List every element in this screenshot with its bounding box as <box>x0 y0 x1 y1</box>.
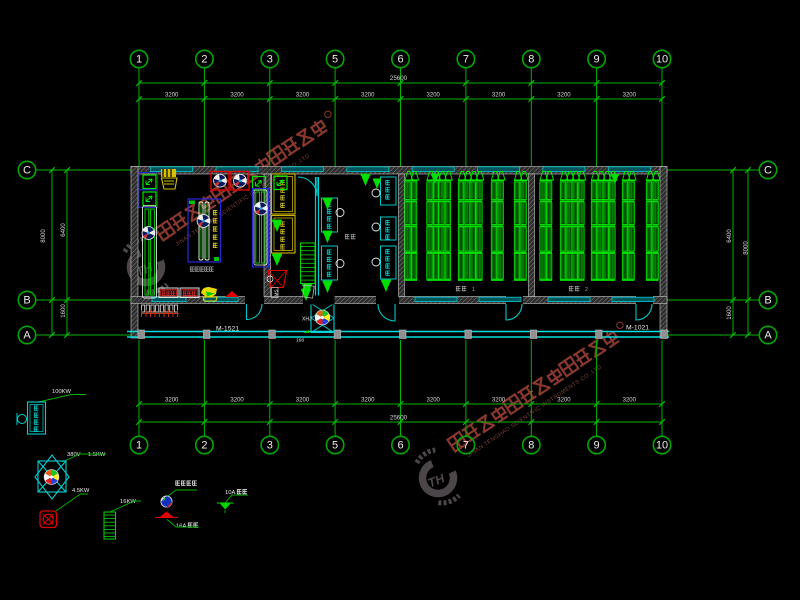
svg-text:1: 1 <box>136 54 142 66</box>
svg-text:3200: 3200 <box>296 398 310 404</box>
svg-text:168: 168 <box>296 338 304 344</box>
svg-text:3200: 3200 <box>492 398 506 404</box>
svg-text:100KW: 100KW <box>52 389 72 395</box>
svg-text:1.5KW: 1.5KW <box>88 452 106 458</box>
svg-text:6400: 6400 <box>727 229 733 243</box>
svg-text:XHJ: XHJ <box>302 317 312 323</box>
svg-text:MS: MS <box>274 290 279 297</box>
svg-text:B: B <box>764 295 771 307</box>
svg-text:3200: 3200 <box>165 93 179 99</box>
svg-text:1: 1 <box>472 287 475 293</box>
svg-text:8000: 8000 <box>744 241 750 255</box>
svg-text:C: C <box>764 165 772 177</box>
svg-text:1600: 1600 <box>727 306 733 320</box>
svg-text:7: 7 <box>463 54 469 66</box>
svg-text:7: 7 <box>463 440 469 452</box>
svg-text:3200: 3200 <box>557 93 571 99</box>
svg-text:3200: 3200 <box>557 398 571 404</box>
svg-text:3200: 3200 <box>361 93 375 99</box>
svg-text:3: 3 <box>267 54 273 66</box>
svg-text:C: C <box>23 165 31 177</box>
svg-text:6400: 6400 <box>61 223 67 237</box>
svg-text:16A: 16A <box>176 524 186 530</box>
svg-text:A: A <box>764 330 772 342</box>
svg-text:9: 9 <box>594 54 600 66</box>
svg-text:4.5KW: 4.5KW <box>72 488 90 494</box>
svg-text:2: 2 <box>201 54 207 66</box>
svg-text:M-1521: M-1521 <box>216 326 239 333</box>
svg-text:3200: 3200 <box>427 93 441 99</box>
svg-text:8: 8 <box>528 440 534 452</box>
svg-text:25600: 25600 <box>390 415 408 422</box>
svg-text:2: 2 <box>585 287 588 293</box>
svg-text:25600: 25600 <box>390 75 408 82</box>
svg-text:10: 10 <box>656 440 668 452</box>
svg-text:1600: 1600 <box>61 304 67 318</box>
svg-text:3200: 3200 <box>492 93 506 99</box>
svg-text:6: 6 <box>397 54 403 66</box>
svg-text:3200: 3200 <box>165 398 179 404</box>
svg-text:6: 6 <box>397 440 403 452</box>
svg-text:3200: 3200 <box>623 93 637 99</box>
svg-text:B: B <box>23 295 30 307</box>
svg-text:9: 9 <box>594 440 600 452</box>
svg-text:5: 5 <box>332 440 338 452</box>
svg-text:3200: 3200 <box>623 398 637 404</box>
svg-text:1: 1 <box>136 440 142 452</box>
svg-text:3200: 3200 <box>361 398 375 404</box>
svg-text:3: 3 <box>267 440 273 452</box>
svg-text:2: 2 <box>201 440 207 452</box>
svg-text:A: A <box>23 330 31 342</box>
svg-text:10: 10 <box>656 54 668 66</box>
svg-text:5: 5 <box>332 54 338 66</box>
svg-text:3200: 3200 <box>427 398 441 404</box>
svg-text:3200: 3200 <box>230 93 244 99</box>
svg-text:M-1021: M-1021 <box>626 325 649 332</box>
svg-text:8: 8 <box>528 54 534 66</box>
svg-text:3200: 3200 <box>296 93 310 99</box>
svg-text:8000: 8000 <box>41 229 47 243</box>
svg-text:3200: 3200 <box>230 398 244 404</box>
